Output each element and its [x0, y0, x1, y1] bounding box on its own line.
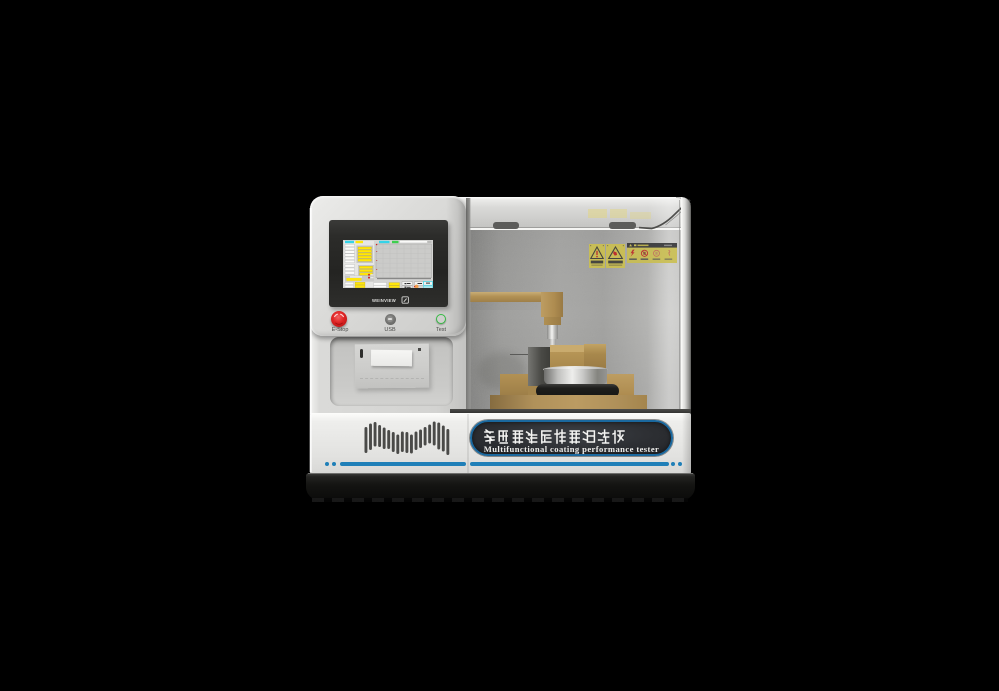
svg-text:WEINVIEW: WEINVIEW: [372, 298, 396, 303]
